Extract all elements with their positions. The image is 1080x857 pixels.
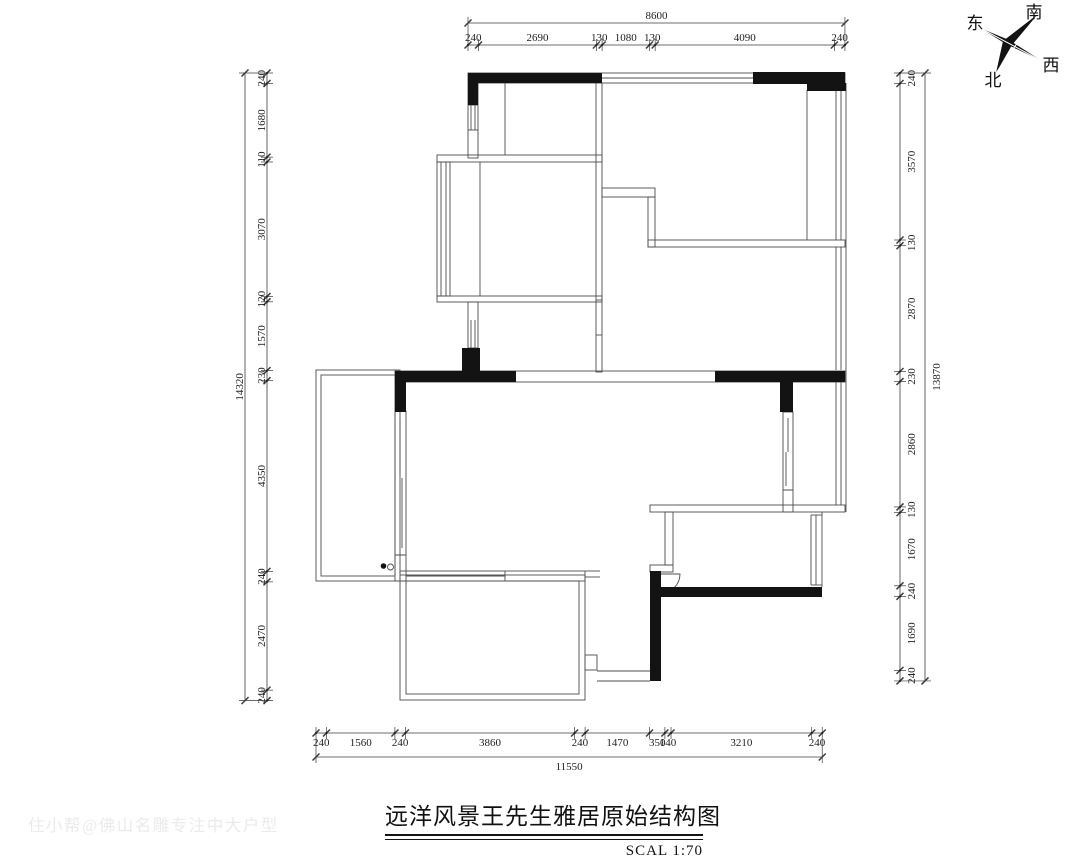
dim-label: 230 bbox=[906, 368, 918, 385]
dim-label: 130 bbox=[591, 32, 608, 44]
sliding-door-left-balcony bbox=[395, 411, 406, 555]
dim-label: 4350 bbox=[256, 465, 268, 488]
title-block: 远洋风景王先生雅居原始结构图 SCAL 1:70 bbox=[385, 797, 703, 857]
watermark: 住小帮@佛山名雕专注中大户型 bbox=[28, 812, 279, 836]
dim-label: 4090 bbox=[734, 32, 757, 44]
dim-label: 1560 bbox=[350, 737, 373, 749]
dim-label: 240 bbox=[906, 582, 918, 599]
dim-label: 120 bbox=[256, 290, 268, 307]
compass-east-label: 东 bbox=[967, 14, 984, 33]
dim-label: 240 bbox=[256, 70, 268, 87]
dim-label: 110 bbox=[256, 151, 268, 168]
dim-label: 3570 bbox=[906, 150, 918, 173]
dim-label: 240 bbox=[572, 737, 589, 749]
dim-label: 2870 bbox=[906, 297, 918, 320]
compass: 东 南 西 北 bbox=[967, 3, 1060, 90]
dim-label: 3860 bbox=[479, 737, 502, 749]
compass-west-label: 西 bbox=[1043, 56, 1060, 75]
dim-label: 14320 bbox=[234, 373, 246, 401]
shear-walls bbox=[395, 72, 846, 681]
dim-label: 240 bbox=[313, 737, 330, 749]
dimension-chain-bottom: 240156024038602401470350140321024011550 bbox=[313, 727, 826, 773]
dimension-chain-top: 2402690130108013040902408600 bbox=[465, 10, 849, 51]
dim-label: 8600 bbox=[645, 10, 668, 22]
compass-south-label: 南 bbox=[1026, 3, 1043, 22]
dim-label: 130 bbox=[906, 234, 918, 251]
dim-label: 1670 bbox=[906, 538, 918, 561]
dimension-chains: 2402690130108013040902408600240156024038… bbox=[234, 10, 943, 773]
dim-label: 3210 bbox=[730, 737, 753, 749]
scale-label: SCAL 1:70 bbox=[385, 843, 703, 857]
dim-label: 2470 bbox=[256, 624, 268, 647]
dim-label: 11550 bbox=[556, 761, 584, 773]
dim-label: 130 bbox=[644, 32, 661, 44]
dim-label: 240 bbox=[256, 687, 268, 704]
dim-label: 13870 bbox=[931, 363, 943, 391]
dim-label: 140 bbox=[660, 737, 677, 749]
dim-label: 3070 bbox=[256, 218, 268, 241]
dim-label: 240 bbox=[831, 32, 848, 44]
dim-label: 2860 bbox=[906, 433, 918, 456]
dim-label: 240 bbox=[906, 70, 918, 87]
dim-label: 240 bbox=[809, 737, 826, 749]
dim-label: 240 bbox=[256, 568, 268, 585]
title-underline bbox=[385, 834, 703, 840]
balcony-left bbox=[316, 370, 400, 581]
compass-north-label: 北 bbox=[985, 71, 1002, 90]
dimension-chain-right: 2403570130287023028601301670240169024013… bbox=[894, 70, 943, 685]
dim-label: 1570 bbox=[256, 325, 268, 348]
dim-label: 1470 bbox=[606, 737, 629, 749]
window-bedroom1 bbox=[437, 162, 450, 296]
balcony-bottom bbox=[400, 575, 585, 700]
floor-plan-sheet: 2402690130108013040902408600240156024038… bbox=[0, 0, 1080, 857]
dim-label: 240 bbox=[465, 32, 482, 44]
dim-label: 240 bbox=[906, 667, 918, 684]
drawing-canvas: 2402690130108013040902408600240156024038… bbox=[0, 0, 1080, 857]
dimension-chain-left: 2401680110307012015702304350240247024014… bbox=[234, 70, 273, 705]
drain-point-solid bbox=[381, 563, 387, 569]
dim-label: 240 bbox=[392, 737, 409, 749]
dim-label: 230 bbox=[256, 367, 268, 384]
dim-label: 1680 bbox=[256, 109, 268, 131]
dim-label: 1690 bbox=[906, 622, 918, 645]
drain-point-hollow bbox=[388, 564, 394, 570]
dim-label: 2690 bbox=[526, 32, 549, 44]
drawing-title: 远洋风景王先生雅居原始结构图 bbox=[385, 797, 703, 831]
dim-label: 130 bbox=[906, 501, 918, 518]
dim-label: 1080 bbox=[615, 32, 638, 44]
